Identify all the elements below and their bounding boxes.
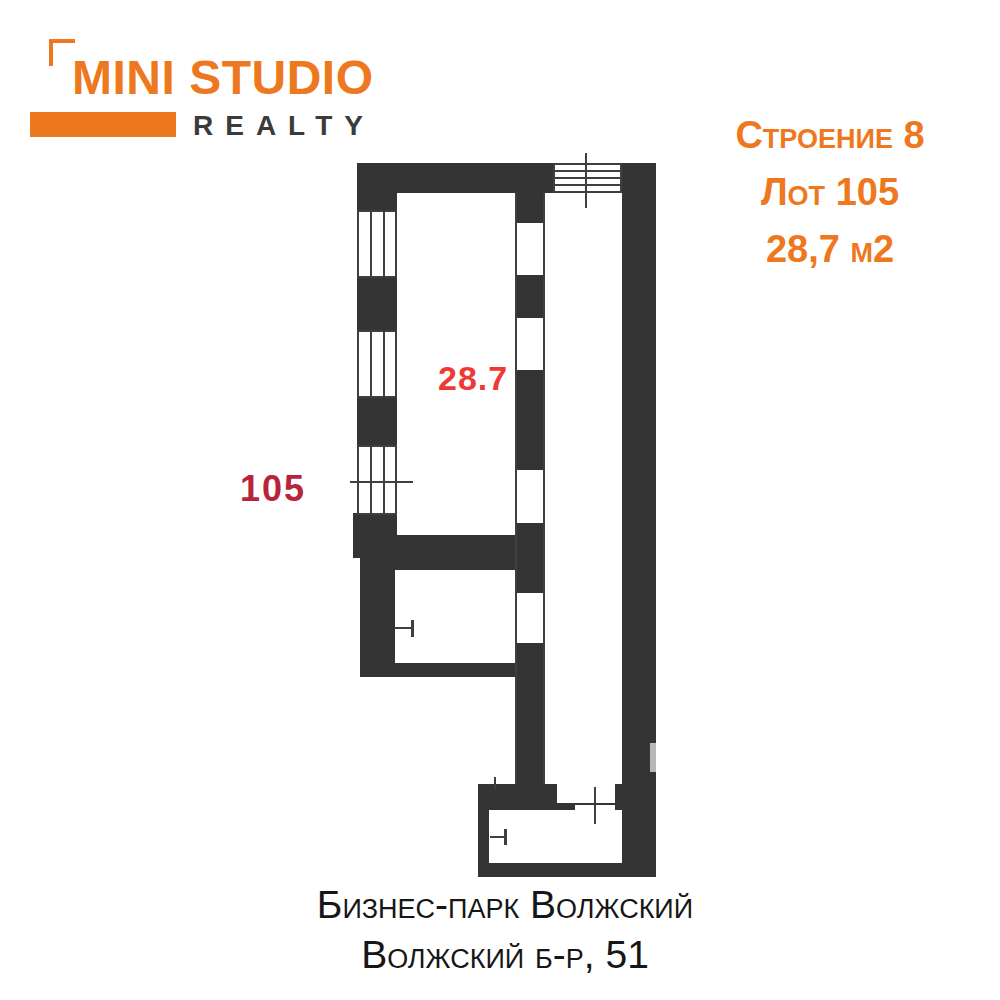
window-pane-line	[555, 170, 620, 172]
wall-left-bottom-corner	[353, 513, 397, 558]
plan-lot-label: 105	[240, 471, 306, 507]
listing-info: Строение 8 Лот 105 28,7 м2	[670, 107, 990, 278]
logo-subtitle: REALTY	[193, 112, 375, 140]
wall-top-left-corner	[357, 163, 397, 210]
lower-room-interior	[395, 570, 515, 663]
window-pane-line	[370, 332, 372, 396]
tick-window-dimension	[350, 481, 413, 483]
window-left-3	[357, 445, 397, 515]
listing-building: Строение 8	[670, 107, 990, 164]
window-pane-line	[383, 447, 385, 513]
tick-bottom-room-end	[504, 829, 507, 845]
window-pane-line	[383, 212, 385, 276]
tick-block-edge	[494, 777, 496, 790]
logo-title: MINI STUDIO	[72, 54, 374, 102]
window-left-2	[357, 330, 397, 398]
wall-left-pier-2	[357, 398, 397, 445]
address-line2: Волжский б-р, 51	[205, 930, 805, 980]
wall-left-pier-1	[357, 278, 397, 330]
bottom-room-interior	[489, 810, 622, 863]
listing-lot: Лот 105	[670, 164, 990, 221]
tick-lower-door-end	[411, 620, 414, 637]
window-left-1	[357, 210, 397, 278]
corridor-interior	[545, 193, 622, 784]
tick-top-window	[585, 153, 587, 208]
plan-area-label: 28.7	[438, 361, 508, 395]
window-top	[553, 163, 622, 193]
window-pane-line	[555, 177, 620, 179]
wall-middle-segment	[517, 275, 543, 318]
address: Бизнес-парк Волжский Волжский б-р, 51	[205, 880, 805, 980]
wall-lower-room-left	[360, 558, 395, 677]
door-passage-upper	[557, 784, 615, 803]
tick-bottom-door	[594, 787, 596, 824]
logo-orange-bar	[30, 112, 176, 137]
window-pane-line	[370, 212, 372, 276]
wall-middle-segment	[517, 370, 543, 470]
listing-area: 28,7 м2	[670, 221, 990, 278]
wall-middle-segment	[517, 193, 543, 223]
window-pane-line	[370, 447, 372, 513]
wall-notch	[650, 743, 656, 772]
window-pane-line	[555, 184, 620, 186]
wall-lower-room-bottom	[360, 663, 515, 677]
address-line1: Бизнес-парк Волжский	[205, 880, 805, 930]
wall-middle-segment	[517, 523, 543, 593]
wall-middle-vertical	[515, 193, 545, 785]
window-pane-line	[383, 332, 385, 396]
wall-middle-segment	[517, 643, 543, 785]
wall-mid-horizontal	[395, 535, 515, 570]
